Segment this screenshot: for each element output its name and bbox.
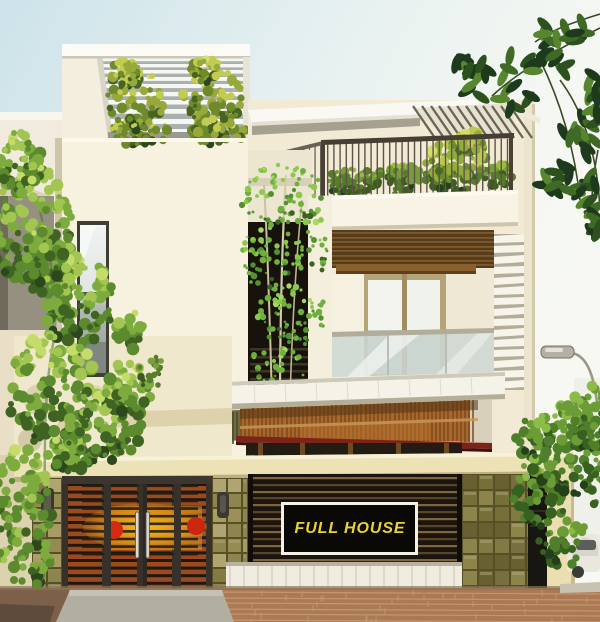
svg-text:FULL HOUSE: FULL HOUSE (295, 520, 406, 537)
